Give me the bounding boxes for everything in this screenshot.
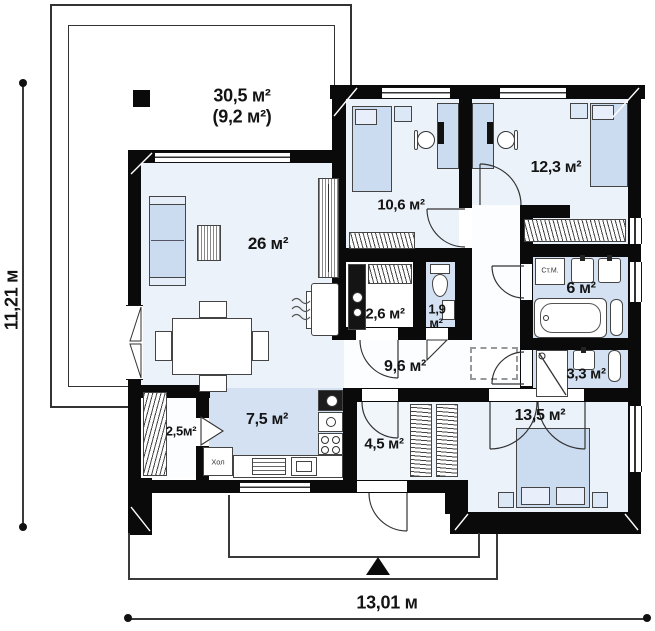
porch-line	[228, 495, 230, 557]
monitor	[487, 122, 493, 144]
sofa-cushion-line	[151, 240, 184, 241]
dimension-width-label: 13,01 м	[356, 593, 417, 614]
cabinet-knob	[326, 417, 336, 427]
entry-wardrobe	[410, 404, 432, 477]
toilet-tank	[430, 264, 450, 274]
window	[629, 262, 642, 302]
wall	[445, 480, 468, 514]
wall	[330, 85, 645, 99]
dimension-height-label: 11,21 м	[2, 270, 23, 330]
nightstand	[570, 103, 588, 119]
wall	[196, 390, 209, 418]
room-label-boiler: 2,6 м²	[365, 306, 404, 323]
burner	[332, 436, 340, 444]
porch-line	[496, 534, 498, 579]
fireplace-lip	[306, 291, 312, 329]
fridge-label: Хол	[211, 458, 224, 467]
pillow	[521, 487, 550, 505]
entry-door-opening	[357, 481, 407, 492]
porch-line	[128, 533, 130, 580]
cabinet-line	[328, 184, 329, 272]
washing-machine-label: Ст.М.	[541, 268, 558, 275]
window	[240, 482, 310, 493]
dining-table	[172, 318, 252, 375]
porch-line	[228, 556, 480, 558]
room-label-bedroom-1: 10,6 м²	[377, 197, 424, 214]
terrace-door	[126, 305, 143, 380]
desk-chair	[417, 131, 435, 149]
porch-line	[128, 578, 498, 580]
room-label-bedroom-3: 13,5 м²	[515, 407, 566, 425]
room-label-pantry: 2,5м²	[166, 424, 197, 439]
radiator	[608, 350, 621, 382]
pillow	[592, 105, 614, 120]
door-opening	[521, 350, 532, 386]
floor-plan: 30,5 м² (9,2 м²)	[0, 0, 655, 631]
sofa-armrest	[149, 277, 186, 286]
chair	[252, 331, 269, 361]
dimension-dot	[19, 523, 27, 531]
fireplace	[311, 283, 339, 336]
faucet	[580, 255, 585, 261]
bathroom-sink	[598, 258, 621, 283]
door-opening	[362, 389, 398, 401]
room-label-bathroom: 6 м²	[566, 280, 595, 298]
chair-back	[414, 130, 418, 150]
nightstand	[394, 106, 412, 122]
bedroom-1-wardrobe	[349, 232, 415, 249]
window	[629, 218, 642, 244]
nightstand	[592, 492, 608, 508]
nightstand	[498, 492, 514, 508]
sink-bowl	[326, 395, 338, 407]
radiator	[610, 299, 623, 336]
terrace-area-label: 30,5 м²	[213, 86, 270, 107]
room-label-living: 26 м²	[248, 234, 288, 254]
room-label-wc-line1: 1,9	[428, 302, 445, 317]
dimension-dot	[124, 614, 132, 622]
boiler-dial	[352, 292, 363, 303]
room-label-hallway: 9,6 м²	[384, 358, 426, 376]
terrace-area-alt-label: (9,2 м²)	[213, 107, 272, 128]
desk-chair	[497, 131, 515, 149]
porch-line	[478, 533, 480, 557]
door-opening	[459, 208, 472, 248]
shower-cabin	[536, 350, 568, 397]
room-label-entry-hall: 4,5 м²	[364, 436, 403, 453]
window	[500, 87, 566, 99]
window	[382, 87, 450, 99]
faucet	[581, 347, 586, 353]
room-label-bedroom-2: 12,3 м²	[531, 159, 582, 177]
oven-door	[296, 461, 312, 472]
dimension-dot	[19, 79, 27, 87]
burner	[321, 446, 329, 454]
monitor	[438, 122, 444, 144]
dimension-dot	[643, 614, 651, 622]
wall	[533, 338, 641, 350]
chair	[199, 301, 227, 318]
window	[629, 406, 642, 472]
sofa	[149, 196, 186, 286]
bathtub-drain	[543, 315, 549, 321]
wall	[459, 99, 472, 208]
entrance-arrow	[366, 557, 390, 575]
tv-stand	[197, 225, 221, 261]
pillow	[355, 109, 377, 125]
hallway-floor-stub	[472, 205, 520, 340]
wall	[343, 388, 357, 480]
entry-wardrobe	[436, 404, 458, 477]
room-label-wc-line2: м²	[429, 316, 442, 331]
bedroom-2-closet	[524, 219, 626, 242]
window	[155, 152, 290, 163]
burner	[321, 436, 329, 444]
boiler-dial	[353, 308, 362, 317]
bathtub-inner	[540, 303, 601, 333]
door-opening	[521, 264, 532, 300]
boiler-shelf	[368, 264, 412, 284]
attic-hatch	[470, 347, 518, 380]
chair-back	[514, 130, 518, 150]
pantry-shelves	[143, 392, 167, 476]
pillow	[556, 487, 585, 505]
room-label-kitchen: 7,5 м²	[246, 411, 288, 429]
burner	[332, 446, 340, 454]
chair	[199, 375, 227, 392]
room-label-shower: 3,3 м²	[566, 366, 605, 383]
faucet	[607, 255, 612, 261]
wall	[332, 248, 472, 262]
sofa-armrest	[149, 196, 186, 205]
wall	[450, 512, 641, 534]
kitchen-counter	[233, 455, 343, 478]
chair	[155, 331, 172, 361]
chimney-marker	[133, 90, 150, 107]
dimension-line-horizontal	[128, 618, 647, 620]
dishwasher	[252, 458, 286, 475]
